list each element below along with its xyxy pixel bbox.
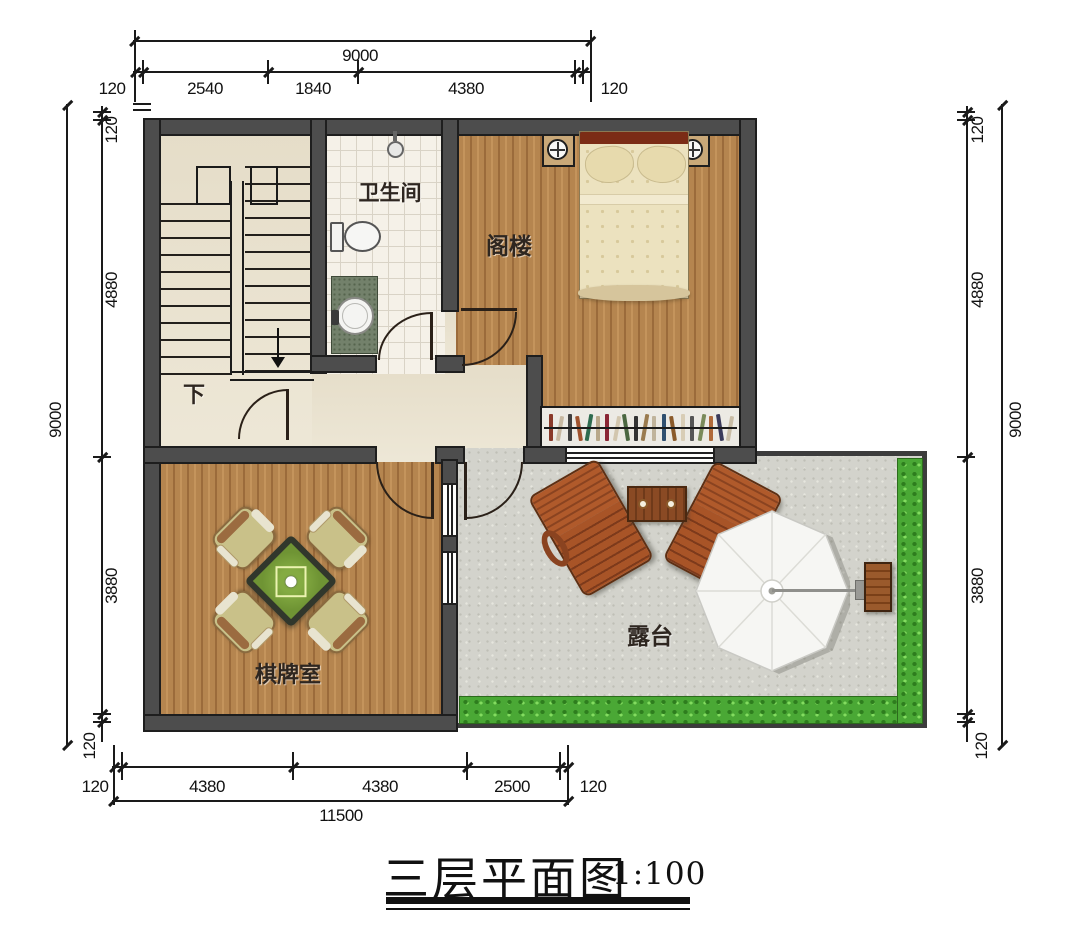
dim-top-overall-line [133,40,592,42]
bedside-lamp-icon [547,139,568,160]
stair-treads-left [161,203,231,375]
bookshelf [540,406,741,448]
bed-throw [578,285,690,301]
terrace-coffee-table [627,486,687,522]
hedge-right [897,458,923,724]
wall-mid-a [143,446,377,464]
dim-left-120-bottom: 120 [81,724,99,768]
dim-top-chain-line [133,71,592,73]
label-bathroom: 卫生间 [347,180,433,204]
wall-chess-east-3 [441,603,458,718]
window-chess-east-1 [441,483,458,537]
dim-bottom-chain-line [112,766,570,768]
label-attic: 阁楼 [477,230,541,258]
label-stairs-down: 下 [176,380,212,406]
nightstand-left [542,134,575,167]
dim-bottom-overall-line [112,800,570,802]
wall-mid-d [711,446,757,464]
bed-fold-line [580,194,688,205]
label-terrace: 露台 [618,620,682,648]
dim-bottom-120-right: 120 [576,778,610,796]
wall-left [143,118,161,732]
wall-chess-east-1 [441,459,458,485]
wall-right [739,118,757,459]
cup-icon [638,499,648,509]
dim-left-overall-line [66,104,68,746]
wall-bath-east [441,118,459,312]
dim-left-4880: 4880 [103,268,121,312]
dim-right-overall-line [1001,104,1003,746]
umbrella-pole [772,589,866,592]
dim-top-4380: 4380 [444,80,488,98]
dim-ext [567,745,569,805]
dim-top-2540: 2540 [183,80,227,98]
dim-top-overall: 9000 [334,46,386,66]
faucet-icon [331,310,339,325]
dim-left-120-top: 120 [103,108,121,152]
dim-ext [590,30,592,102]
dim-bottom-120-left: 120 [78,778,112,796]
dim-bottom-2500: 2500 [490,778,534,796]
dim-ext [134,30,136,102]
toilet-icon [330,222,344,252]
wall-bath-south-a [310,355,377,373]
toilet-bowl-icon [344,221,381,252]
window-chess-east-2 [441,551,458,605]
terrace-side-table [864,562,892,612]
stair-railing-return [230,371,314,381]
stair-landing-mark-1 [196,166,231,205]
stairs-down-arrowhead-icon [271,357,285,368]
dim-ext [133,103,151,105]
title-underline-thin [386,908,690,910]
window-attic-south [565,446,715,464]
dim-ext [133,109,151,111]
dim-right-chain-line [966,106,968,742]
label-chess-room: 棋牌室 [240,660,336,686]
wall-stair-east [310,118,327,374]
dim-left-chain-line [101,106,103,742]
hedge-bottom [459,696,921,724]
dim-right-120-bottom: 120 [973,724,991,768]
dim-top-1840: 1840 [291,80,335,98]
dim-top-120-left: 120 [95,80,129,98]
terrace-parapet-top [755,451,927,456]
attic-door-leaf [461,308,517,311]
dim-bottom-overall: 11500 [315,806,367,826]
stair-landing-mark-2 [250,166,278,205]
dim-top-120-right: 120 [597,80,631,98]
dim-right-120-top: 120 [969,108,987,152]
page-title-scale: 1:100 [612,856,706,892]
dim-bottom-4380-b: 4380 [358,778,402,796]
stair-railing [230,181,244,375]
dim-bottom-4380-a: 4380 [185,778,229,796]
dim-right-4880: 4880 [969,268,987,312]
double-bed [579,131,689,299]
stairs-down-arrow-icon [277,328,279,358]
wall-bath-south-b [435,355,465,373]
shower-arm-icon [393,131,397,141]
title-underline-thick [386,897,690,904]
wall-bottom [143,714,458,732]
dim-left-overall: 9000 [46,392,66,448]
dim-ext [113,745,115,805]
dim-left-3880: 3880 [103,564,121,608]
wall-mid-c [523,446,569,464]
shower-icon [387,141,404,158]
floor-plan-page: 下 卫生间 阁楼 棋牌室 露台 9000 120 2540 1840 4380 … [0,0,1080,927]
bookshelf-books [549,414,732,441]
dim-right-3880: 3880 [969,564,987,608]
cup-icon [666,499,676,509]
sink-icon [336,297,374,335]
dim-right-overall: 9000 [1006,392,1026,448]
